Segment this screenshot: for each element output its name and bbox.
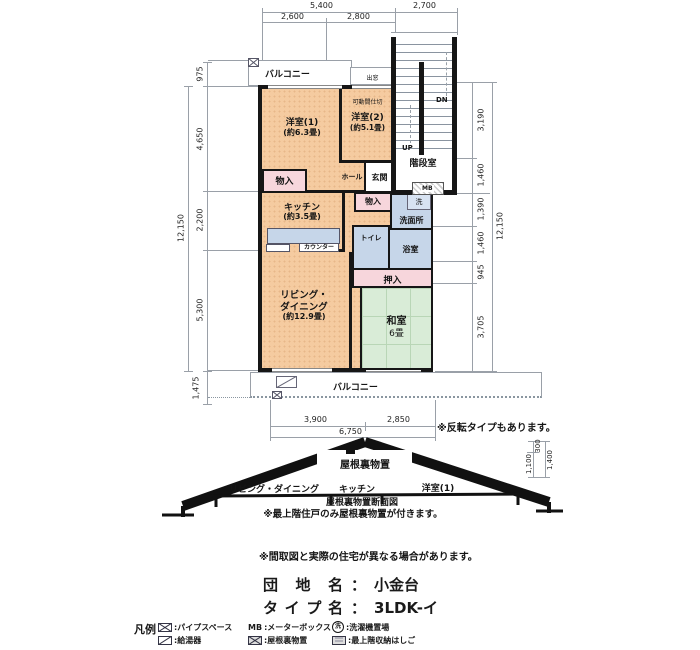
meter-box: MB <box>412 182 444 195</box>
section-kitchen-label: キッチン <box>339 482 375 495</box>
type-name-row: タイプ名 ： 3LDK-イ <box>263 597 438 618</box>
genkan-label: 玄関 <box>366 172 393 183</box>
stair-arrow <box>410 105 411 143</box>
yoshitsu1-size: (約6.3畳) <box>260 127 344 138</box>
dim-right-total: 12,150 <box>496 212 505 240</box>
extension-line <box>433 261 472 262</box>
extension-line <box>433 283 472 284</box>
dim-bottom-2850: 2,850 <box>387 415 410 424</box>
closet-monoire-a: 物入 <box>262 169 307 193</box>
dimension-line <box>262 8 263 60</box>
dim-roof-1400: 1,400 <box>546 450 554 470</box>
dim-right-3705: 3,705 <box>477 316 486 339</box>
legend-laundry-label: :洗濯機置場 <box>346 622 389 633</box>
legend-pipe-space-label: :パイプスペース <box>174 622 232 633</box>
extension-line <box>208 60 248 61</box>
washitsu-room: 和室 6畳 <box>360 286 433 370</box>
legend-meter-box: MB :メーターボックス <box>248 622 331 633</box>
balcony-top: バルコニー <box>248 60 352 86</box>
legend-attic-label: :屋根裏物置 <box>264 635 307 646</box>
type-name-separator: ： <box>351 597 366 618</box>
legend-mb-label: :メーターボックス <box>264 622 331 633</box>
monoire-a-label: 物入 <box>264 174 305 187</box>
danchi-name-value: 小金台 <box>374 574 419 595</box>
dimension-line <box>492 82 493 371</box>
dim-left-975: 975 <box>196 66 205 81</box>
balcony-bottom-label: バルコニー <box>333 380 378 393</box>
extension-line <box>208 191 260 192</box>
dim-right-1460a: 1,460 <box>477 164 486 187</box>
legend-laundry: 洗 :洗濯機置場 <box>332 621 389 633</box>
toilet: トイレ <box>352 225 390 270</box>
closet-monoire-b: 物入 <box>354 192 392 212</box>
section-living-label: リビング・ダイニング <box>229 482 319 495</box>
legend-title: 凡例 <box>134 621 156 637</box>
washitsu-label: 和室 <box>362 312 431 327</box>
extension-line <box>208 250 260 251</box>
extension-line <box>433 226 472 227</box>
dim-left-2200: 2,200 <box>196 209 205 232</box>
pipe-space-icon <box>272 391 282 399</box>
dim-right-1460b: 1,460 <box>477 232 486 255</box>
stair-room-label: 階段室 <box>393 156 453 169</box>
dimension-tick <box>203 62 212 63</box>
dimension-tick <box>203 404 212 405</box>
danchi-name-separator: ： <box>351 574 366 595</box>
dimension-tick <box>184 371 193 372</box>
wall <box>419 62 424 155</box>
dim-bottom-3900: 3,900 <box>304 415 327 424</box>
laundry-mark: 洗 <box>408 197 430 207</box>
toilet-label: トイレ <box>354 233 388 243</box>
dim-top-2600: 2,600 <box>281 12 304 21</box>
water-heater-icon <box>158 636 172 645</box>
stair-up-label: UP <box>402 144 413 152</box>
balcony-top-label: バルコニー <box>265 67 310 80</box>
dim-top-2700: 2,700 <box>413 1 436 10</box>
senmenjo-label: 洗面所 <box>392 215 431 226</box>
section-yoshitsu1-label: 洋室(1) <box>422 481 455 494</box>
note-reverse-type: ※反転タイプもあります。 <box>437 419 556 434</box>
counter-label: カウンター <box>299 243 339 252</box>
attic-storage-label: 屋根裏物置 <box>318 456 412 471</box>
danchi-name-row: 団 地 名 ： 小金台 <box>263 574 419 595</box>
legend-attic-storage: :屋根裏物置 <box>248 635 307 646</box>
dimension-line <box>207 62 208 405</box>
bay-window: 出窓 <box>350 67 395 85</box>
legend-pipe-space: :パイプスペース <box>158 622 232 633</box>
pipe-space-icon <box>248 58 259 67</box>
dimension-tick <box>365 422 366 431</box>
living-size: (約12.9畳) <box>260 311 348 322</box>
dimension-line <box>326 18 327 66</box>
partition-label: 可動間仕切 <box>340 97 395 106</box>
oshiire-label: 押入 <box>354 273 431 286</box>
pipe-space-icon <box>158 623 172 632</box>
wall <box>452 37 457 195</box>
dim-top-5400: 5,400 <box>310 1 333 10</box>
hall-label: ホール <box>338 172 366 182</box>
dim-right-945: 945 <box>477 264 486 279</box>
wall <box>391 37 396 195</box>
bathroom: 浴室 <box>388 228 433 270</box>
dimension-tick <box>203 371 212 372</box>
extension-line <box>208 86 258 87</box>
legend-water-heater: :給湯器 <box>158 635 201 646</box>
meter-box-label: MB <box>421 185 434 192</box>
closet-oshiire: 押入 <box>352 268 433 288</box>
yoshitsu2-size: (約5.1畳) <box>340 122 395 133</box>
dim-left-1475: 1,475 <box>192 377 201 400</box>
dim-left-5300: 5,300 <box>196 299 205 322</box>
floorplan-sheet: 5,400 2,700 2,600 2,800 975 4,650 2,200 … <box>0 0 700 650</box>
dimension-line <box>395 8 396 35</box>
bath-label: 浴室 <box>390 244 431 255</box>
dim-top-2800: 2,800 <box>347 12 370 21</box>
extension-line <box>457 158 472 159</box>
kitchen-sink <box>266 244 290 252</box>
disclaimer-note: ※間取図と実際の住宅が異なる場合があります。 <box>259 548 478 563</box>
window <box>352 85 392 89</box>
legend-water-heater-label: :給湯器 <box>174 635 201 646</box>
attic-storage-icon <box>248 636 262 645</box>
dim-right-3190: 3,190 <box>477 109 486 132</box>
dimension-line <box>188 86 189 372</box>
dim-roof-300: 300 <box>534 439 542 452</box>
bay-window-label: 出窓 <box>351 73 394 82</box>
section-note: ※最上階住戸のみ屋根裏物置が付きます。 <box>263 506 442 520</box>
legend-ladder-label: :最上階収納はしご <box>348 635 415 646</box>
legend-ladder: :最上階収納はしご <box>332 635 415 646</box>
dimension-tick <box>528 477 550 478</box>
water-heater-icon <box>276 376 297 388</box>
extension-line <box>208 397 252 398</box>
ladder-icon <box>332 636 346 645</box>
extension-line <box>208 370 258 371</box>
window <box>268 85 342 89</box>
legend-mb-prefix: MB <box>248 623 262 632</box>
type-name-label: タイプ名 <box>263 597 343 618</box>
monoire-b-label: 物入 <box>356 196 390 207</box>
type-name-value: 3LDK-イ <box>374 597 438 618</box>
stair-dn-label: DN <box>436 96 448 104</box>
dim-left-total: 12,150 <box>177 214 186 242</box>
dimension-tick <box>184 86 193 87</box>
laundry-circle-icon: 洗 <box>332 621 344 633</box>
dim-right-1390: 1,390 <box>477 198 486 221</box>
washitsu-size: 6畳 <box>362 326 431 339</box>
kitchen-size: (約3.5畳) <box>260 211 344 222</box>
stair-arrow <box>446 52 447 96</box>
kitchen-counter <box>267 228 340 244</box>
dimension-line <box>262 22 395 23</box>
dim-roof-1100: 1,100 <box>525 454 533 474</box>
danchi-name-label: 団 地 名 <box>263 574 343 595</box>
dim-left-4650: 4,650 <box>196 128 205 151</box>
dimension-line <box>457 8 458 35</box>
washing-machine-area: 洗 <box>407 193 431 210</box>
extension-line <box>457 82 490 83</box>
